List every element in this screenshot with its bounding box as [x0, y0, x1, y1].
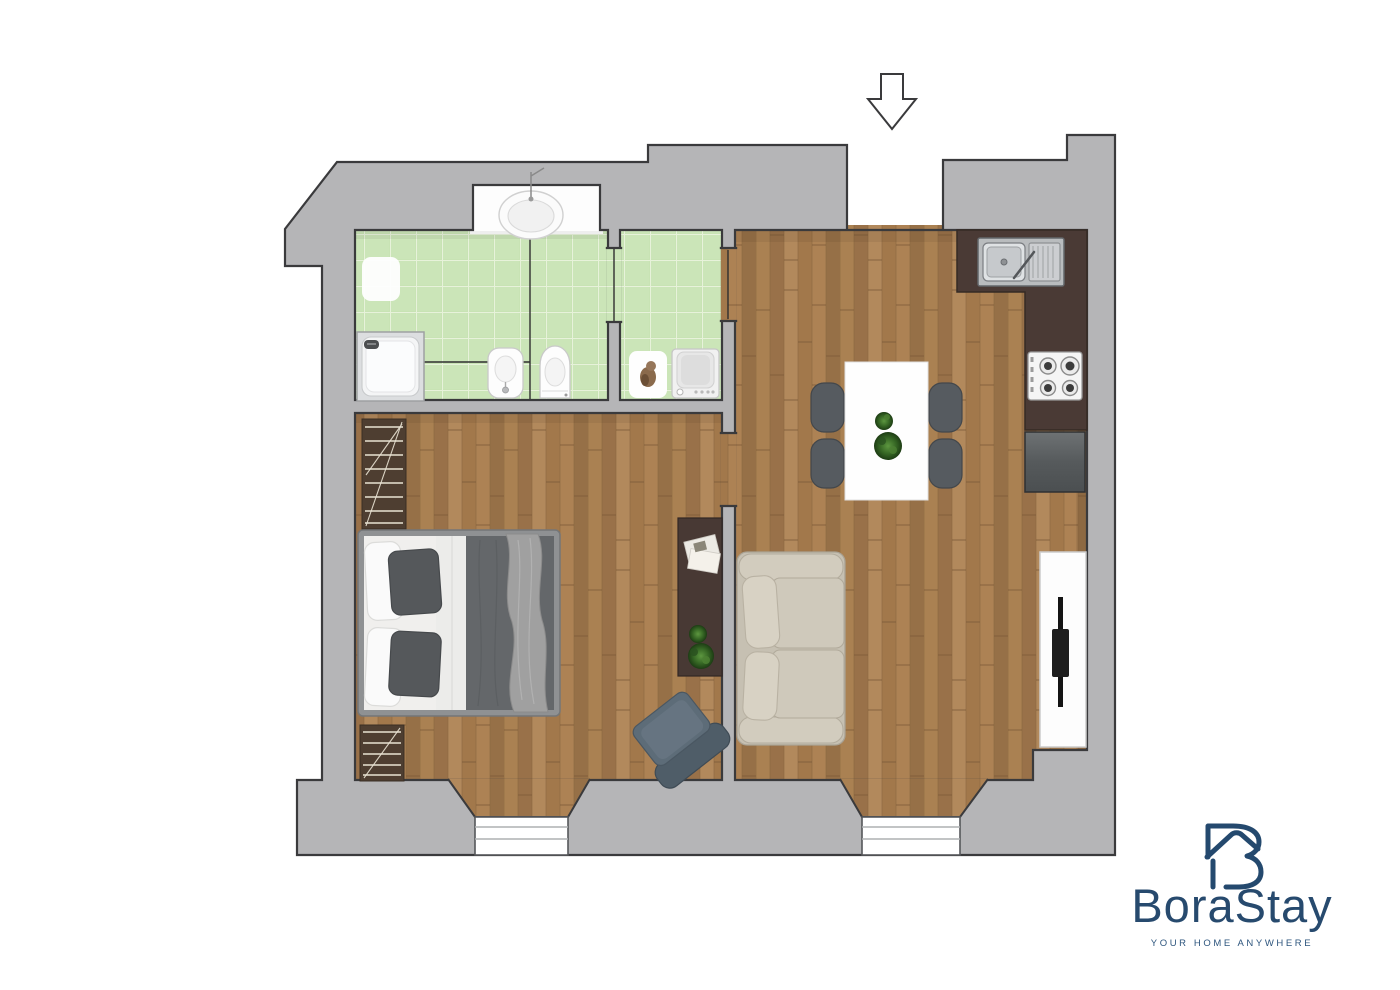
throw-blanket	[506, 534, 548, 712]
logo-tagline: YOUR HOME ANYWHERE	[1060, 938, 1400, 949]
toilet	[540, 346, 570, 398]
gas-hob	[1028, 352, 1082, 400]
under-counter-appliance	[1025, 432, 1085, 492]
tv-mount	[1052, 629, 1069, 677]
borastay-logo-icon	[1207, 826, 1261, 887]
sideboard	[678, 518, 722, 676]
dining-chair	[929, 383, 962, 432]
shower-tray	[357, 332, 424, 401]
entrance-arrow-icon	[868, 74, 916, 129]
logo-wordmark: BoraStay	[1060, 880, 1400, 932]
floor-plan-page: BoraStay YOUR HOME ANYWHERE	[0, 0, 1400, 990]
door-bathroom-laundry	[606, 248, 622, 322]
tv-console	[1040, 552, 1086, 747]
kitchen-sink	[978, 238, 1064, 286]
door-laundry-living	[720, 248, 737, 321]
bath-mat	[362, 257, 400, 301]
opening-bedroom-living	[720, 433, 737, 506]
pillow-dark	[388, 631, 441, 698]
radiator-bottom	[360, 725, 404, 781]
washing-machine	[672, 349, 719, 398]
dining-chair	[811, 383, 844, 432]
radiator-top	[362, 419, 406, 529]
dining-chair	[929, 439, 962, 488]
dining-table	[845, 362, 928, 500]
double-bed	[358, 530, 560, 716]
floor-plan-drawing	[0, 0, 1400, 990]
sofa	[737, 552, 845, 745]
bidet	[488, 348, 523, 398]
dining-set	[811, 362, 962, 500]
pillow-dark	[388, 548, 442, 615]
pet-mat	[629, 351, 667, 398]
dining-chair	[811, 439, 844, 488]
